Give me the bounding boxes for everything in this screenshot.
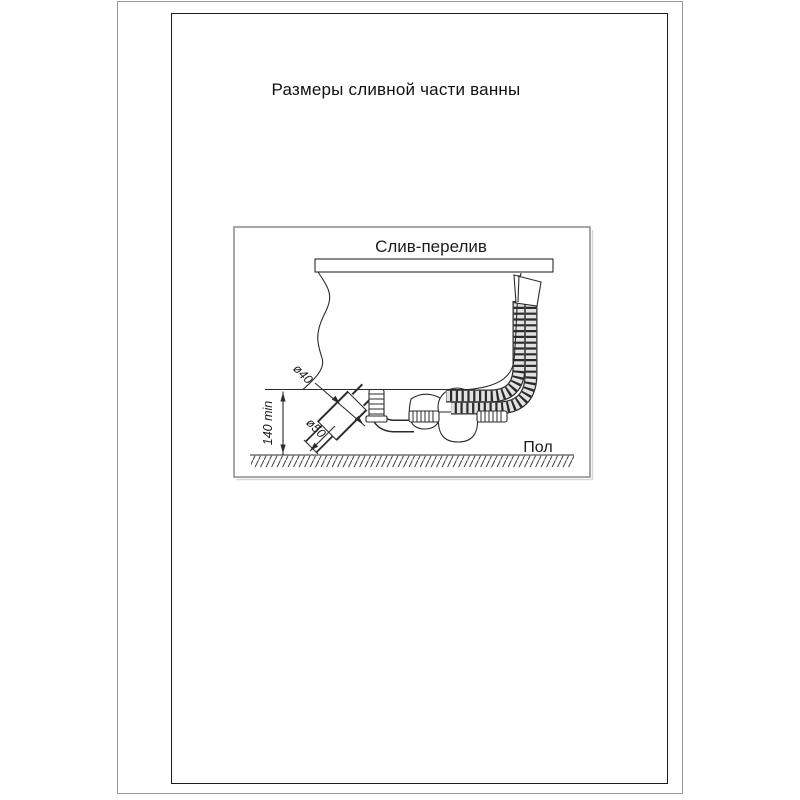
tailpiece-coupling: [366, 390, 387, 423]
floor-label: Пол: [523, 439, 552, 456]
coupling-flange: [366, 416, 387, 422]
height-min-label: 140 min: [261, 401, 275, 446]
diagram-title: Слив-перелив: [375, 237, 487, 256]
tub-rim: [315, 259, 553, 272]
trap-cup: [438, 412, 477, 442]
drain-diagram: Слив-перелив: [0, 0, 800, 800]
document-page: Размеры сливной части ванны Слив-перелив: [0, 0, 800, 800]
floor-hatch: [251, 456, 574, 467]
